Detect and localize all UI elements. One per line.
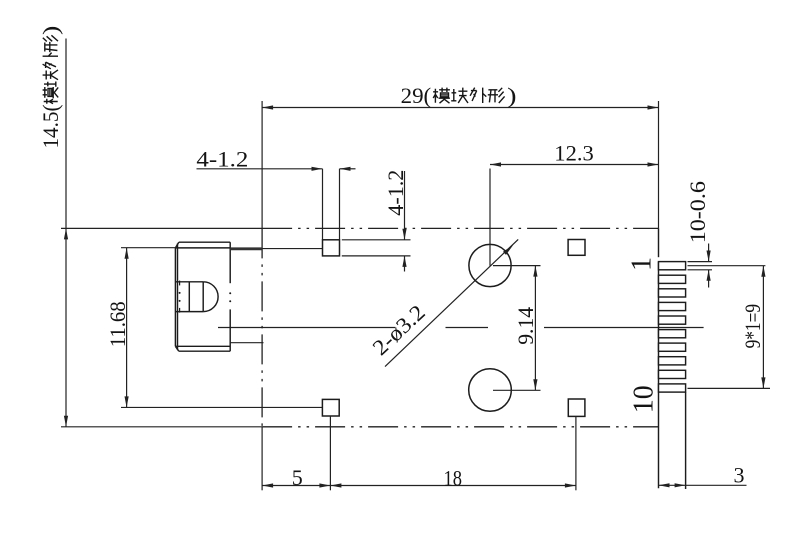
svg-text:4-1.2: 4-1.2 [383, 170, 408, 216]
svg-text:4-1.2: 4-1.2 [196, 147, 248, 172]
svg-text:11.68: 11.68 [105, 301, 130, 347]
svg-text:10-0.6: 10-0.6 [685, 181, 710, 243]
svg-text:3: 3 [734, 463, 745, 488]
svg-text:1: 1 [627, 257, 658, 271]
svg-text:2-ø3.2: 2-ø3.2 [367, 300, 429, 361]
svg-text:9.14: 9.14 [513, 307, 538, 345]
svg-text:29(: 29( [401, 83, 432, 108]
svg-text:5: 5 [292, 465, 303, 490]
svg-text:14.5(: 14.5( [38, 105, 63, 149]
svg-text:): ) [38, 26, 63, 35]
svg-text:10: 10 [628, 385, 659, 413]
svg-text:): ) [507, 83, 516, 108]
svg-text:18: 18 [444, 466, 463, 491]
svg-text:9*1=9: 9*1=9 [740, 304, 765, 348]
svg-text:12.3: 12.3 [554, 140, 594, 165]
